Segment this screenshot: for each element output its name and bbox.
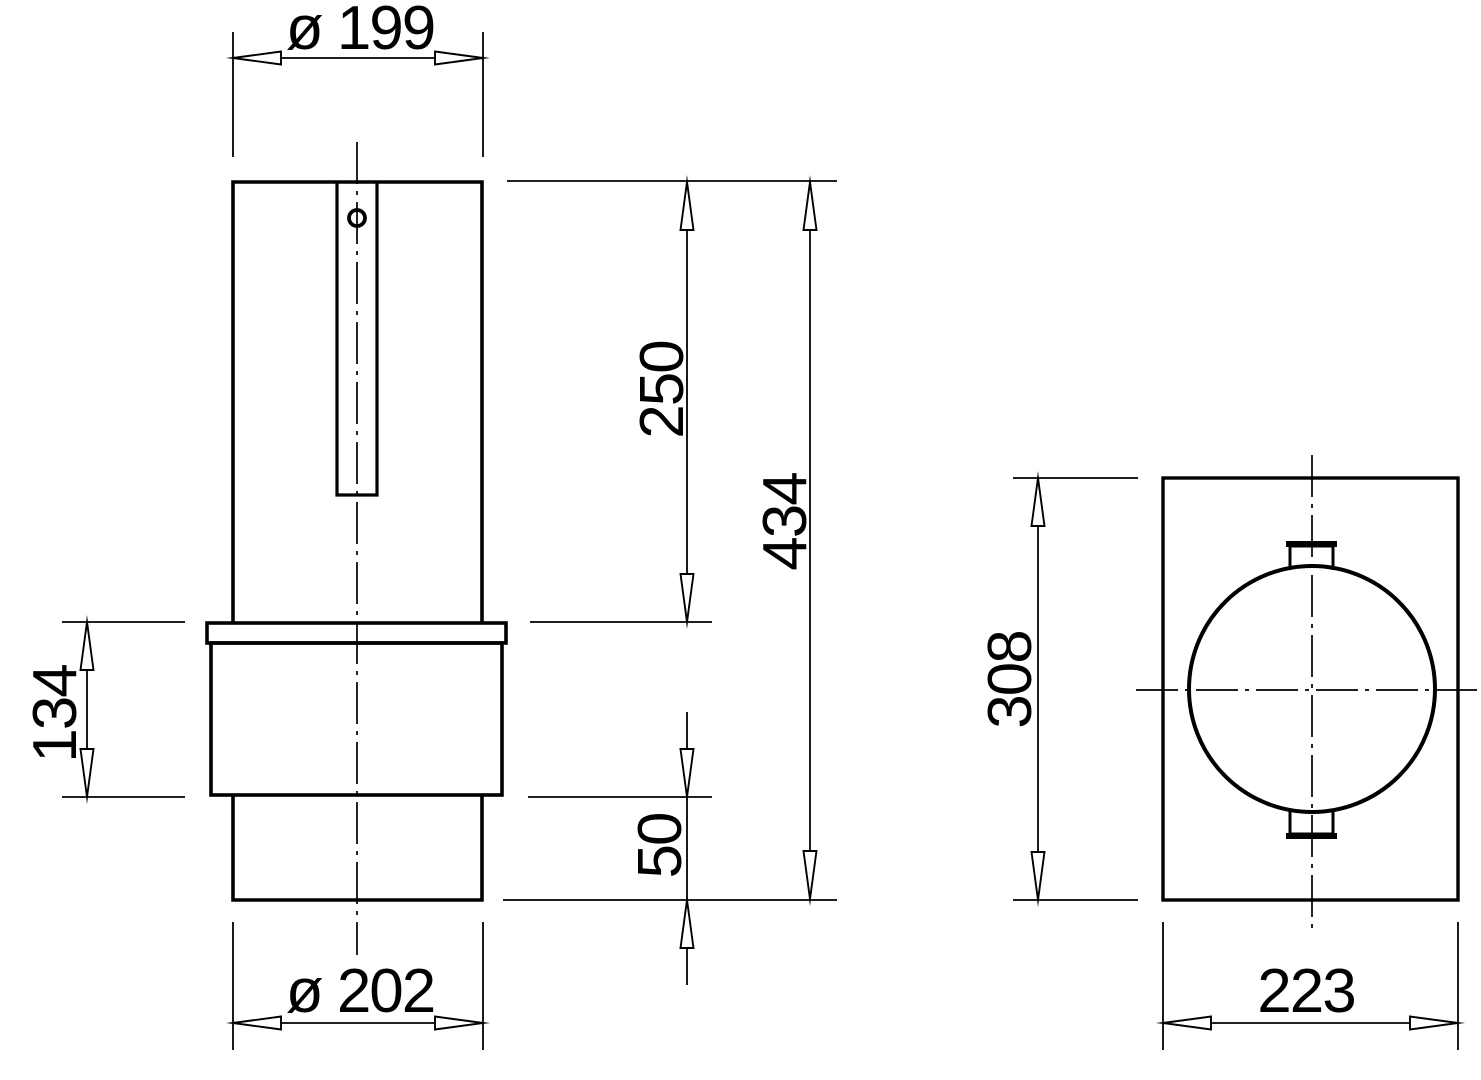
dimension-label-top-diameter: ø 199 [286, 0, 435, 63]
dimension-lower-offset: 50 [528, 712, 712, 985]
arrowhead-down [804, 851, 817, 899]
side-view [1136, 455, 1477, 929]
arrowhead-up [681, 900, 694, 948]
dimension-bottom-diameter: ø 202 [233, 922, 483, 1050]
arrowhead-down [681, 749, 694, 797]
arrowhead-right [435, 1017, 483, 1030]
arrowhead-down [1032, 852, 1045, 900]
arrowhead-up [804, 182, 817, 230]
dimension-label-side-width: 223 [1257, 957, 1354, 1026]
dimension-top-diameter: ø 199 [233, 0, 483, 157]
dimension-side-width: 223 [1163, 922, 1458, 1050]
arrowhead-down [681, 574, 694, 622]
dimension-collar-length: 134 [21, 622, 185, 797]
arrowhead-up [81, 622, 94, 670]
dimension-label-upper-length: 250 [628, 341, 697, 439]
arrowhead-up [1032, 478, 1045, 526]
arrowhead-left [233, 52, 281, 65]
arrowhead-up [681, 182, 694, 230]
arrowhead-left [233, 1017, 281, 1030]
dimension-label-bottom-diameter: ø 202 [286, 957, 435, 1026]
technical-drawing-canvas: ø 199 250 434 50 134 [0, 0, 1481, 1080]
front-view [207, 142, 506, 955]
dimension-side-height: 308 [976, 478, 1138, 900]
arrowhead-right [435, 52, 483, 65]
arrowhead-left [1163, 1017, 1211, 1030]
dimension-label-collar-length: 134 [21, 665, 90, 763]
dimension-label-lower-offset: 50 [626, 813, 695, 878]
dimension-label-side-height: 308 [976, 631, 1045, 728]
arrowhead-right [1410, 1017, 1458, 1030]
dimension-overall-length: 434 [503, 182, 837, 900]
dimension-label-overall-length: 434 [751, 473, 820, 571]
